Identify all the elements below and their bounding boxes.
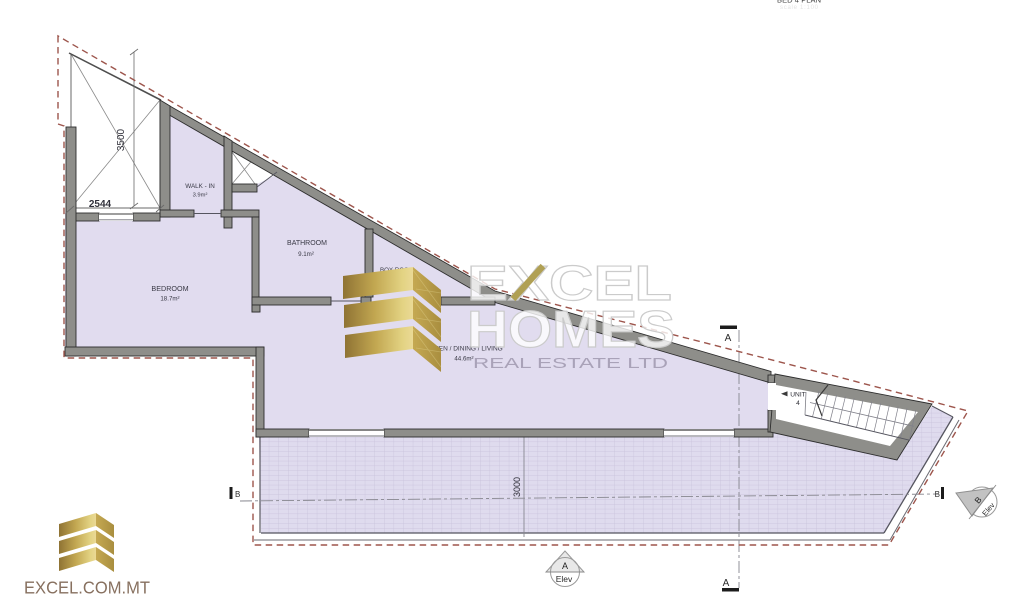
- svg-text:HOMES: HOMES: [467, 300, 675, 358]
- svg-text:B: B: [935, 490, 940, 499]
- svg-text:18.7m²: 18.7m²: [160, 296, 179, 303]
- svg-text:3.9m²: 3.9m²: [193, 193, 208, 199]
- svg-text:3000: 3000: [512, 477, 522, 497]
- svg-text:scale 1:100: scale 1:100: [780, 5, 819, 11]
- svg-text:WALK - IN: WALK - IN: [185, 183, 215, 190]
- svg-text:BEDROOM: BEDROOM: [151, 284, 188, 293]
- svg-text:A: A: [562, 561, 568, 571]
- svg-text:REAL ESTATE LTD: REAL ESTATE LTD: [473, 355, 668, 372]
- svg-text:4: 4: [796, 400, 800, 407]
- svg-text:9.1m²: 9.1m²: [298, 251, 314, 258]
- svg-text:Elev: Elev: [556, 574, 573, 584]
- svg-text:2544: 2544: [89, 199, 112, 210]
- svg-text:Elev: Elev: [980, 501, 996, 518]
- svg-text:EXCEL.COM.MT: EXCEL.COM.MT: [24, 578, 150, 598]
- svg-text:BATHROOM: BATHROOM: [287, 240, 327, 247]
- svg-text:A: A: [725, 333, 732, 344]
- svg-text:B: B: [235, 490, 240, 499]
- svg-text:UNIT: UNIT: [790, 392, 805, 399]
- svg-text:A: A: [723, 578, 730, 589]
- svg-text:BED 4 PLAN: BED 4 PLAN: [777, 0, 821, 5]
- svg-text:3500: 3500: [116, 128, 127, 151]
